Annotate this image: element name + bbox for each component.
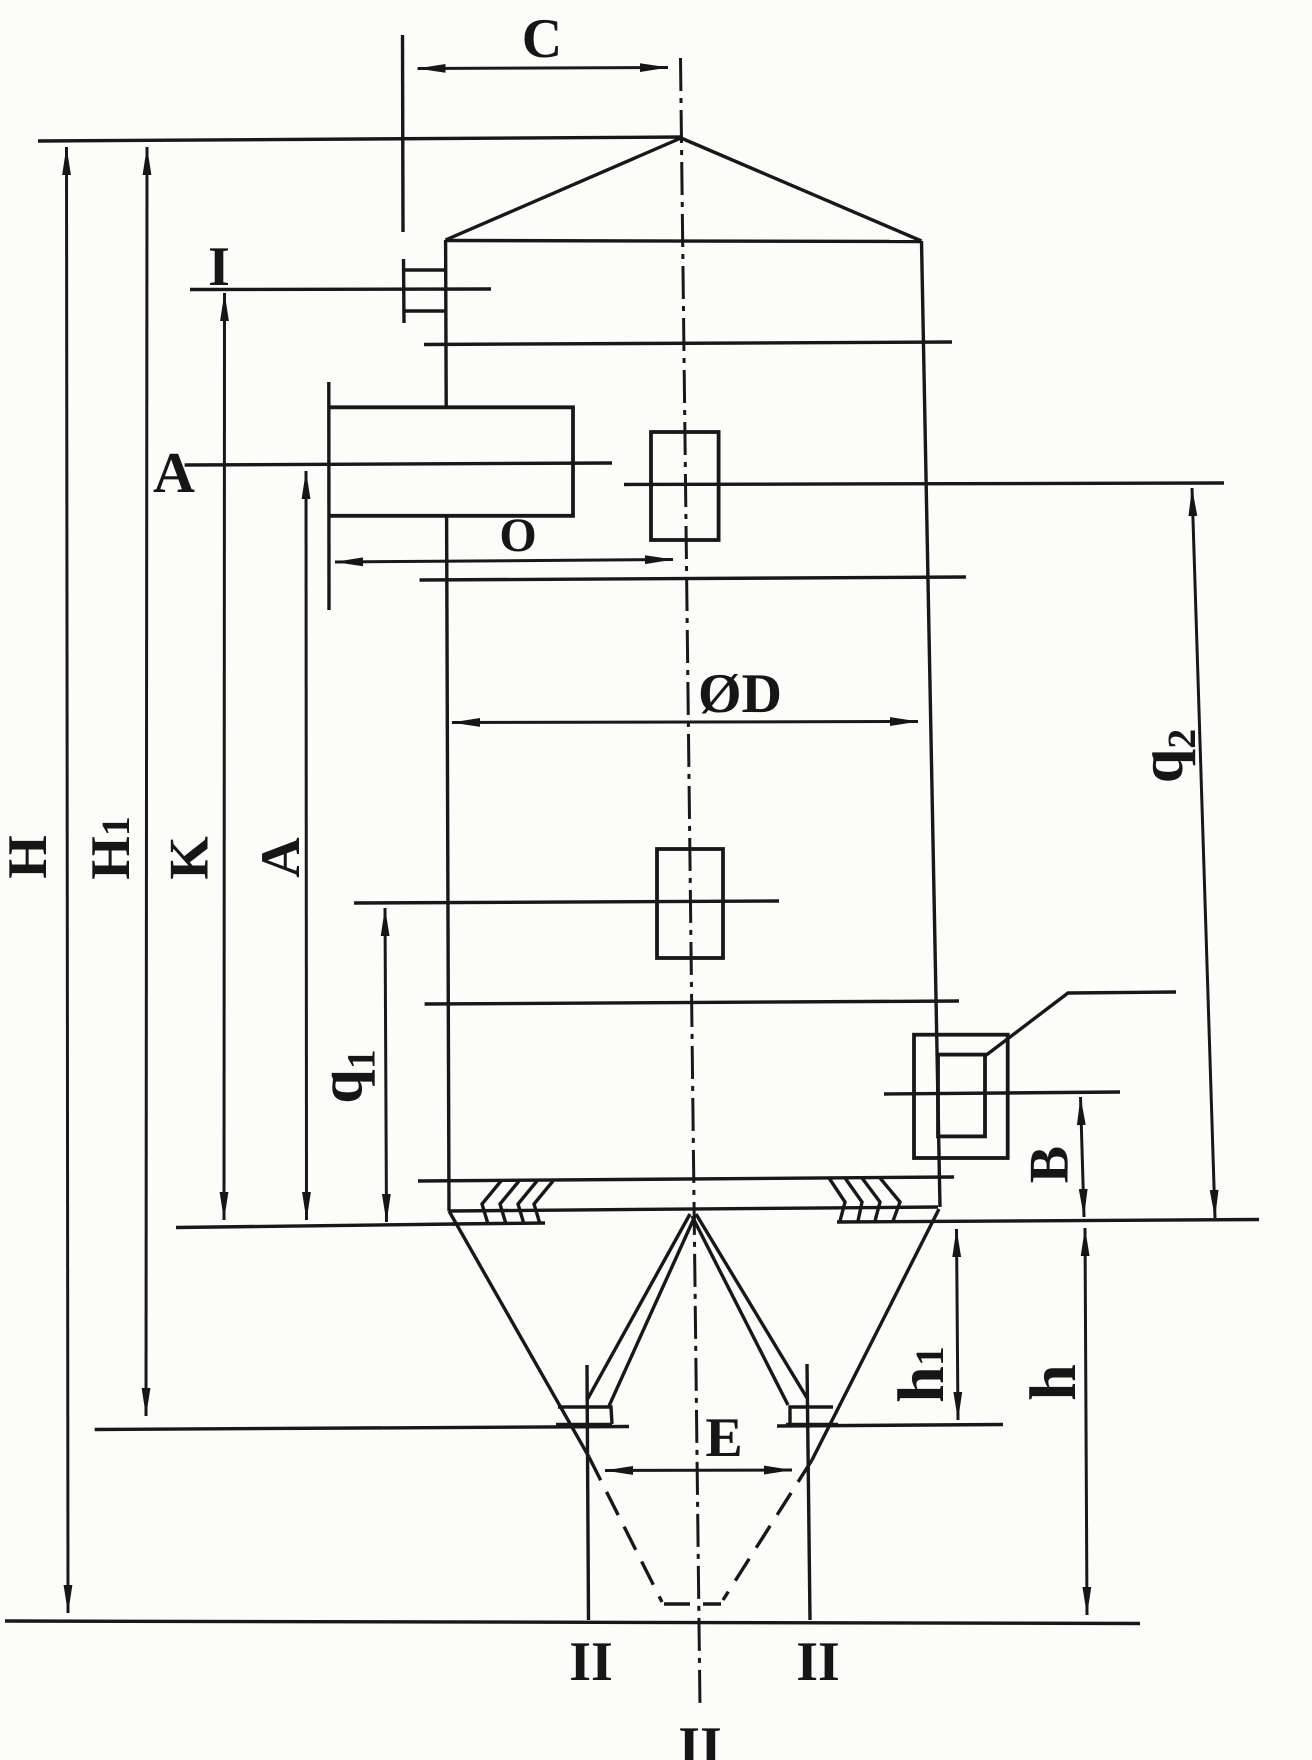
svg-text:O: O <box>499 509 536 562</box>
svg-text:E: E <box>705 1407 742 1469</box>
svg-text:h: h <box>1017 1364 1090 1401</box>
svg-text:II: II <box>569 1631 613 1693</box>
svg-text:H: H <box>0 835 59 879</box>
svg-text:I: I <box>208 236 230 298</box>
svg-text:ØD: ØD <box>698 663 782 725</box>
svg-text:C: C <box>522 8 562 70</box>
svg-text:A: A <box>250 837 312 878</box>
svg-text:A: A <box>153 440 195 505</box>
svg-text:B: B <box>1019 1146 1081 1183</box>
svg-text:K: K <box>159 836 221 880</box>
svg-text:II: II <box>796 1631 840 1693</box>
svg-text:II: II <box>678 1716 722 1760</box>
